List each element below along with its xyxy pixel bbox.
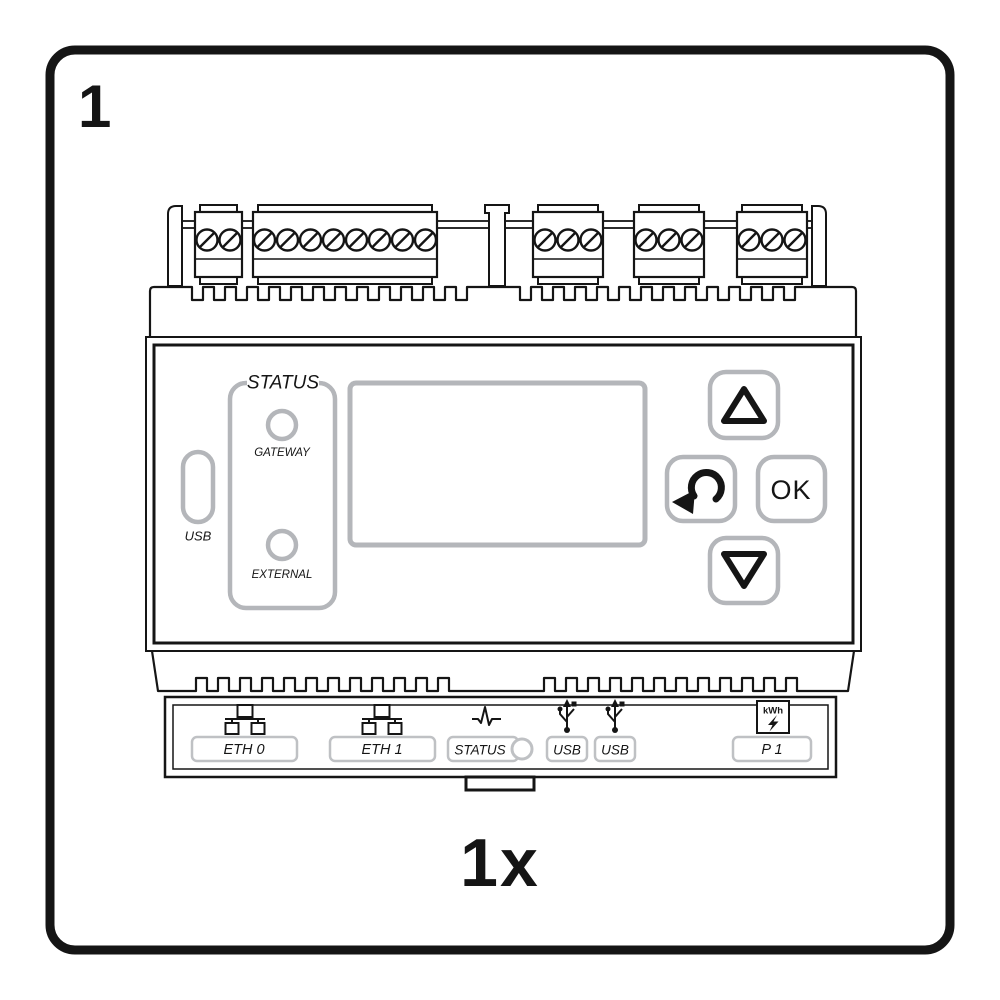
terminal-block (253, 205, 437, 284)
usb-slot-label: USB (185, 529, 212, 544)
manual-page: 1 USB STATUS GATEWAY EXTERNAL (0, 0, 1000, 1000)
din-rail-clip (466, 777, 534, 790)
terminal-shelf-connector (437, 221, 489, 228)
top-vent-band (150, 287, 856, 337)
usb-slot (183, 452, 213, 522)
gateway-led-label: GATEWAY (254, 447, 311, 459)
ok-button: OK (758, 457, 825, 521)
lcd-display (350, 383, 645, 545)
terminal-block (195, 205, 242, 284)
quantity-label: 1x (460, 825, 540, 901)
terminal-row-right-wall (812, 206, 826, 286)
terminal-shelf-connector (182, 221, 195, 228)
gateway-led (268, 411, 296, 439)
down-button (710, 538, 778, 603)
status-panel: STATUS GATEWAY EXTERNAL (230, 373, 335, 609)
port-label: ETH 1 (361, 742, 402, 758)
terminal-row-left-wall (168, 206, 182, 286)
instruction-illustration: 1 USB STATUS GATEWAY EXTERNAL (0, 0, 1000, 1000)
terminal-block (634, 205, 704, 284)
external-led (268, 531, 296, 559)
terminal-shelf-connector (505, 221, 533, 228)
port-label: ETH 0 (223, 742, 264, 758)
kwh-icon-text: kWh (763, 706, 783, 717)
port-label: USB (601, 743, 629, 758)
port-label: USB (553, 743, 581, 758)
status-port-led (512, 739, 532, 759)
port-label: STATUS (454, 743, 505, 758)
terminal-shelf-connector (704, 221, 737, 228)
ports-strip: ETH 0 ETH 1 STATUS (165, 697, 836, 790)
step-number: 1 (78, 73, 111, 140)
terminal-shelf-connector (242, 221, 253, 228)
kwh-meter-icon: kWh (757, 701, 789, 733)
terminal-shelf-connector (603, 221, 634, 228)
external-led-label: EXTERNAL (252, 569, 313, 581)
ok-button-label: OK (770, 475, 811, 505)
top-terminal-row (150, 205, 856, 337)
status-panel-title: STATUS (247, 373, 319, 394)
up-button (710, 372, 778, 438)
device-faceplate: USB STATUS GATEWAY EXTERNAL (146, 337, 861, 651)
terminal-block (737, 205, 807, 284)
terminal-block (533, 205, 603, 284)
back-button (667, 457, 735, 521)
port-label: P 1 (761, 742, 782, 758)
terminal-row-center-post (485, 205, 509, 286)
